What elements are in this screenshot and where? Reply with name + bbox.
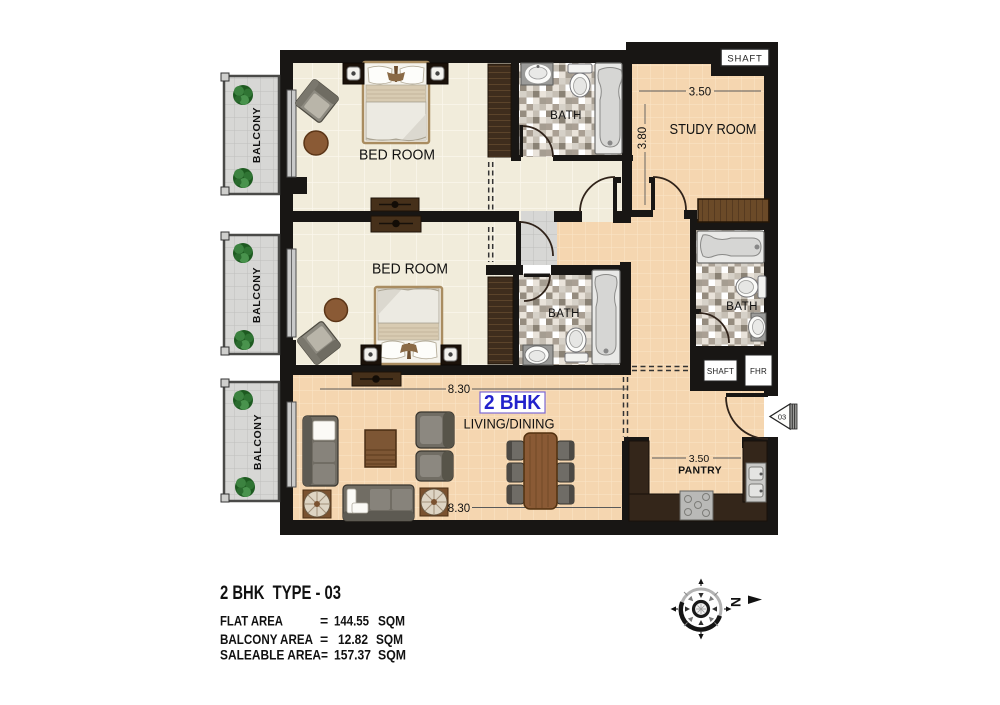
svg-text:N: N [728, 597, 744, 607]
svg-text:FLAT AREA: FLAT AREA [220, 613, 283, 629]
svg-text:12.82: 12.82 [338, 631, 368, 647]
svg-text:SHAFT: SHAFT [727, 54, 762, 65]
svg-text:144.55: 144.55 [334, 613, 369, 629]
svg-text:BALCONY: BALCONY [252, 414, 264, 470]
svg-text:BED ROOM: BED ROOM [359, 147, 435, 164]
svg-text:BED ROOM: BED ROOM [372, 261, 448, 278]
svg-text:8.30: 8.30 [448, 503, 470, 515]
svg-text:SHAFT: SHAFT [707, 367, 734, 376]
svg-text:8.30: 8.30 [448, 384, 470, 396]
svg-text:FHR: FHR [750, 367, 767, 376]
svg-text:157.37: 157.37 [334, 647, 371, 663]
svg-text:STUDY ROOM: STUDY ROOM [670, 121, 757, 138]
svg-text:SALEABLE AREA=: SALEABLE AREA= [220, 647, 328, 663]
svg-text:PANTRY: PANTRY [678, 465, 722, 477]
svg-text:03: 03 [778, 413, 786, 422]
svg-text:BALCONY AREA: BALCONY AREA [220, 631, 313, 647]
svg-text:BATH: BATH [548, 308, 580, 320]
svg-text:LIVING/DINING: LIVING/DINING [464, 417, 555, 432]
svg-text:=: = [320, 631, 328, 647]
svg-text:SQM: SQM [378, 613, 405, 629]
svg-text:2 BHK TYPE - 03: 2 BHK TYPE - 03 [220, 582, 341, 604]
svg-text:3.50: 3.50 [689, 87, 711, 99]
svg-text:BATH: BATH [726, 301, 758, 313]
svg-text:BATH: BATH [550, 110, 582, 122]
svg-text:=: = [320, 613, 328, 629]
svg-text:SQM: SQM [378, 647, 406, 663]
svg-text:2 BHK: 2 BHK [484, 392, 542, 414]
svg-text:BALCONY: BALCONY [251, 267, 263, 323]
svg-text:3.50: 3.50 [689, 453, 710, 465]
svg-text:BALCONY: BALCONY [251, 107, 263, 163]
svg-text:3.80: 3.80 [637, 127, 649, 149]
svg-text:SQM: SQM [376, 631, 403, 647]
